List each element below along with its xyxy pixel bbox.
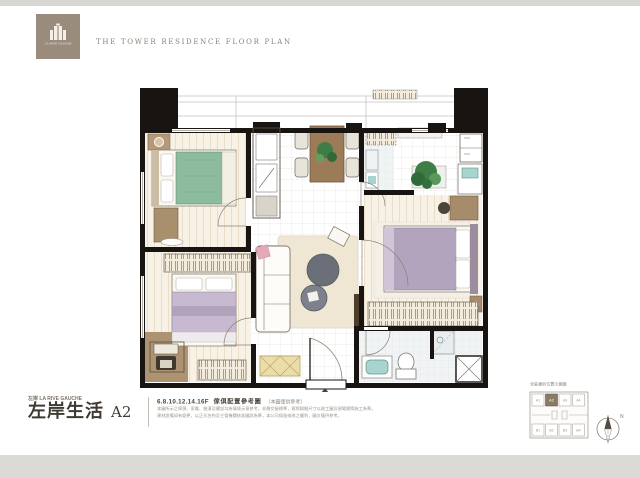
tower-logo-icon	[48, 23, 68, 41]
disclaimer-line-1: 本圖所示之傢俱、家電、裝潢及擺設均為情境示意參考，非屬交屋標準，實際隔間尺寸以竣…	[157, 405, 375, 408]
threshold	[306, 380, 346, 389]
unit-cell-label: B1	[536, 428, 540, 432]
brochure-page: LA RIVE GAUCHE THE TOWER RESIDENCE FLOOR…	[0, 0, 640, 478]
pillow	[456, 230, 470, 258]
unit-cell-label: B4	[576, 428, 580, 432]
cabinet	[198, 360, 246, 380]
column	[140, 88, 178, 128]
brand-logo: LA RIVE GAUCHE	[36, 14, 80, 59]
chair	[295, 158, 308, 177]
divider	[148, 397, 149, 427]
highlighted-unit-label: A2	[549, 398, 555, 403]
ac-unit	[366, 132, 396, 145]
compass-north-label: N	[620, 414, 624, 420]
wardrobe	[368, 302, 478, 326]
unit-cell-label: A4	[576, 398, 580, 402]
keyplan-caption: 全區棟別位置示意圖	[530, 381, 566, 387]
plan-caption-line: 6.8.10.12.14.16F 傢俱配置參考圖 （本圖僅供參考）	[157, 396, 479, 402]
floor-mat	[161, 239, 183, 246]
logo-caption: LA RIVE GAUCHE	[45, 42, 72, 45]
shoe-cabinet	[260, 356, 300, 376]
series-label: 左岸 LA RIVE GAUCHE	[28, 394, 86, 398]
page-bottom-edge	[0, 455, 640, 478]
purple-duvet	[384, 228, 456, 290]
disclaimer-line-2: 建材設備如有變更，以正式合約及主管機關核准圖說為準，本公司保留修改之權利，圖文僅…	[157, 412, 375, 415]
pillow	[456, 260, 470, 288]
floor-plan	[126, 80, 496, 392]
main-title: 左岸生活	[28, 403, 104, 421]
unit-cell-label: A1	[536, 398, 540, 402]
kitchen-sink	[462, 168, 478, 178]
pillow	[206, 278, 232, 290]
unit-cell-label: A3	[563, 398, 567, 402]
pillow	[161, 180, 173, 202]
unit-cell-label: B2	[549, 428, 553, 432]
headboard	[470, 224, 478, 294]
plan-note: （本圖僅供參考）	[266, 399, 306, 405]
pillow	[161, 154, 173, 176]
toilet-bowl	[398, 353, 414, 371]
page-top-edge	[0, 0, 640, 6]
compass: N	[592, 406, 626, 455]
keyplan: A1 A3 A4 B1 B2 B3 B4 A2	[528, 388, 592, 451]
unit-label: A2	[111, 403, 131, 421]
desk	[450, 196, 478, 220]
coffee-table	[307, 254, 339, 286]
page-title: THE TOWER RESIDENCE FLOOR PLAN	[96, 38, 292, 46]
sink	[366, 360, 388, 374]
column	[454, 88, 488, 128]
chair	[346, 158, 359, 177]
chair	[438, 202, 450, 214]
pillow	[176, 278, 202, 290]
dresser	[154, 208, 178, 242]
toilet-tank	[396, 369, 416, 379]
fixture	[366, 150, 378, 170]
wardrobe	[164, 254, 251, 272]
unit-cell-label: B3	[563, 428, 567, 432]
lamp	[155, 138, 164, 147]
vent-grille	[373, 90, 417, 99]
